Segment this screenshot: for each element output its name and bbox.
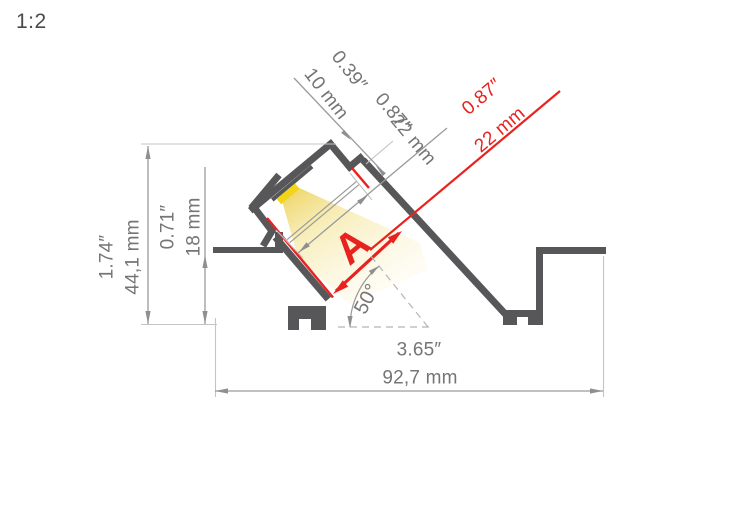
dim-recess-height-mm: 18 mm <box>185 197 204 256</box>
dim-total-width-mm: 92,7 mm <box>382 369 457 388</box>
profile-outline <box>213 139 606 330</box>
technical-drawing-canvas: 1:2 0.39″ 10 mm 0.87″ 22 mm 0.87″ 22 mm … <box>0 0 750 506</box>
scale-label: 1:2 <box>16 10 47 34</box>
dim-recess-height-inch: 0.71″ <box>159 205 178 250</box>
dim-total-width-inch: 3.65″ <box>397 341 442 360</box>
dim-total-height-mm: 44,1 mm <box>124 219 143 294</box>
dim-total-height-inch: 1.74″ <box>98 235 117 280</box>
